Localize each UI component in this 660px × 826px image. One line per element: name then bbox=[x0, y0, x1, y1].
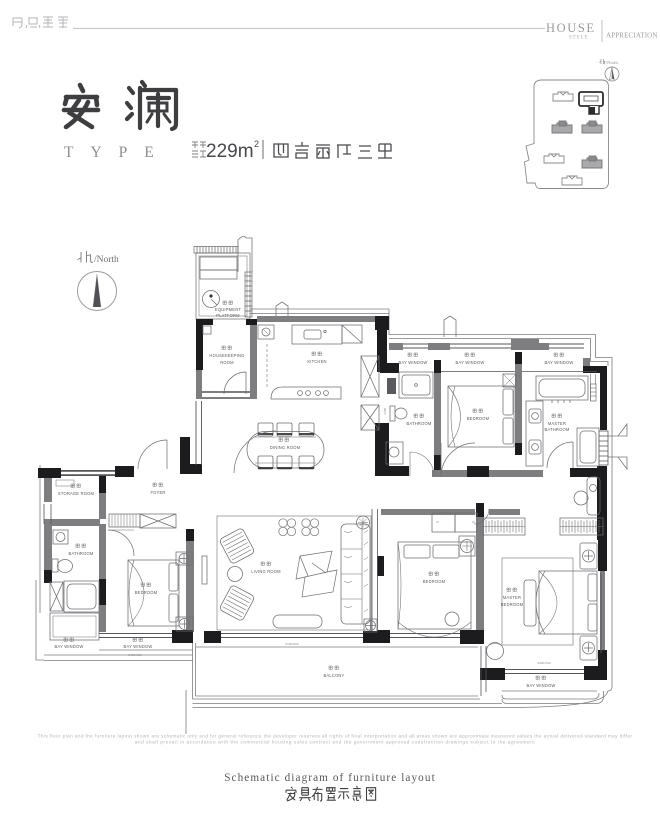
svg-text:PLATFORM: PLATFORM bbox=[216, 313, 240, 318]
svg-text:/North: /North bbox=[606, 60, 618, 65]
svg-text:BATHROOM: BATHROOM bbox=[407, 421, 432, 426]
svg-text:BATHROOM: BATHROOM bbox=[545, 427, 570, 432]
svg-text:KITCHEN: KITCHEN bbox=[307, 359, 326, 364]
svg-text:BEDROOM: BEDROOM bbox=[423, 579, 446, 584]
svg-text:BAY WINDOW: BAY WINDOW bbox=[527, 683, 556, 688]
svg-text:BAY WINDOW: BAY WINDOW bbox=[55, 644, 84, 649]
svg-text:BAY WINDOW: BAY WINDOW bbox=[545, 360, 574, 365]
svg-text:229m: 229m bbox=[206, 141, 254, 162]
svg-text:/North: /North bbox=[94, 255, 119, 265]
svg-text:BEDROOM: BEDROOM bbox=[135, 590, 158, 595]
svg-text:HOUSE: HOUSE bbox=[546, 21, 596, 35]
svg-text:2: 2 bbox=[254, 139, 259, 149]
svg-text:Schematic diagram of furniture: Schematic diagram of furniture layout bbox=[224, 772, 436, 784]
svg-text:This floor plan and the furnit: This floor plan and the furniture layout… bbox=[38, 734, 633, 739]
svg-text:STYLE: STYLE bbox=[569, 36, 588, 41]
svg-text:APPRECIATION: APPRECIATION bbox=[606, 32, 658, 40]
svg-text:BEDROOM: BEDROOM bbox=[467, 416, 490, 421]
svg-text:LIVING ROOM: LIVING ROOM bbox=[251, 569, 281, 574]
svg-text:BAY WINDOW: BAY WINDOW bbox=[456, 360, 485, 365]
svg-text:TYPE: TYPE bbox=[64, 144, 171, 161]
svg-text:STORAGE ROOM: STORAGE ROOM bbox=[58, 491, 95, 496]
svg-text:and shall prevail in accordanc: and shall prevail in accordance with the… bbox=[135, 740, 536, 745]
svg-text:HOUSEKEEPING: HOUSEKEEPING bbox=[209, 353, 244, 358]
svg-text:BATHROOM: BATHROOM bbox=[69, 551, 94, 556]
svg-text:ROOM: ROOM bbox=[220, 360, 234, 365]
svg-text:BAY WINDOW: BAY WINDOW bbox=[124, 644, 153, 649]
svg-text:2150: 2150 bbox=[383, 407, 387, 414]
svg-text:3400x700: 3400x700 bbox=[537, 661, 551, 665]
svg-text:BEDROOM: BEDROOM bbox=[501, 602, 524, 607]
svg-text:FOYER: FOYER bbox=[150, 490, 165, 495]
svg-text:BAY WINDOW: BAY WINDOW bbox=[399, 360, 428, 365]
svg-text:EQUIPMENT: EQUIPMENT bbox=[215, 307, 241, 312]
svg-text:DINING ROOM: DINING ROOM bbox=[270, 445, 301, 450]
svg-text:5100x600: 5100x600 bbox=[285, 642, 299, 646]
svg-text:BALCONY: BALCONY bbox=[324, 673, 345, 678]
svg-text:MASTER: MASTER bbox=[503, 595, 521, 600]
svg-text:MASTER: MASTER bbox=[548, 421, 566, 426]
svg-text:2400x700: 2400x700 bbox=[128, 653, 142, 657]
